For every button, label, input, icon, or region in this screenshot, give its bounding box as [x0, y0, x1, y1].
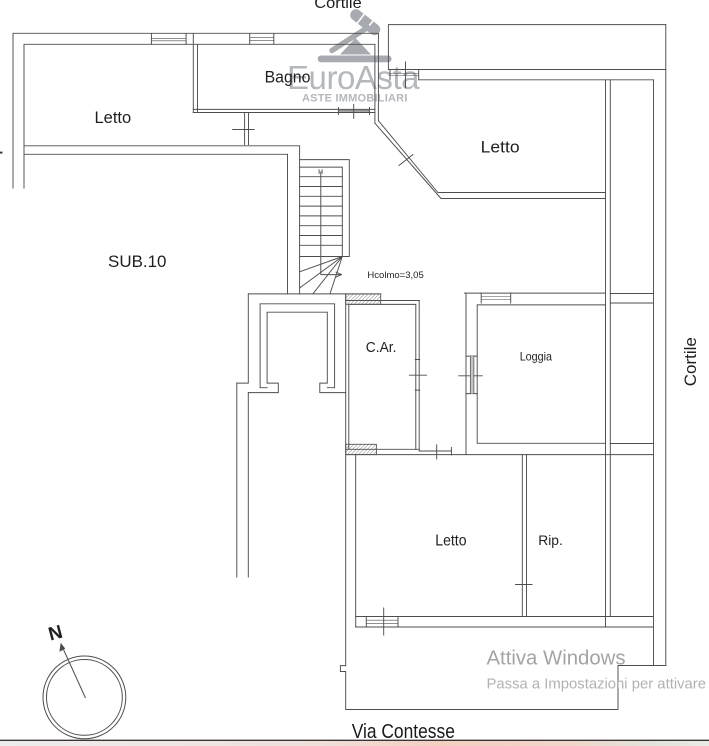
svg-text:Letto: Letto	[481, 139, 520, 157]
svg-text:Passa a Impostazioni per attiv: Passa a Impostazioni per attivare	[487, 677, 707, 693]
svg-text:C.Ar.: C.Ar.	[366, 339, 397, 356]
svg-text:Bagno: Bagno	[265, 69, 311, 87]
svg-text:Cortile: Cortile	[681, 337, 700, 386]
svg-text:Attiva Windows: Attiva Windows	[487, 648, 626, 670]
svg-text:Rip.: Rip.	[538, 532, 563, 548]
svg-text:Cortile: Cortile	[314, 0, 362, 12]
svg-text:SUB.10: SUB.10	[108, 252, 167, 271]
svg-text:Hcolmo=3,05: Hcolmo=3,05	[367, 270, 423, 281]
svg-text:ASTE IMMOBILIARI: ASTE IMMOBILIARI	[302, 93, 408, 105]
svg-text:Letto: Letto	[95, 109, 132, 127]
svg-text:Letto: Letto	[435, 533, 466, 550]
svg-text:Loggia: Loggia	[520, 350, 553, 364]
